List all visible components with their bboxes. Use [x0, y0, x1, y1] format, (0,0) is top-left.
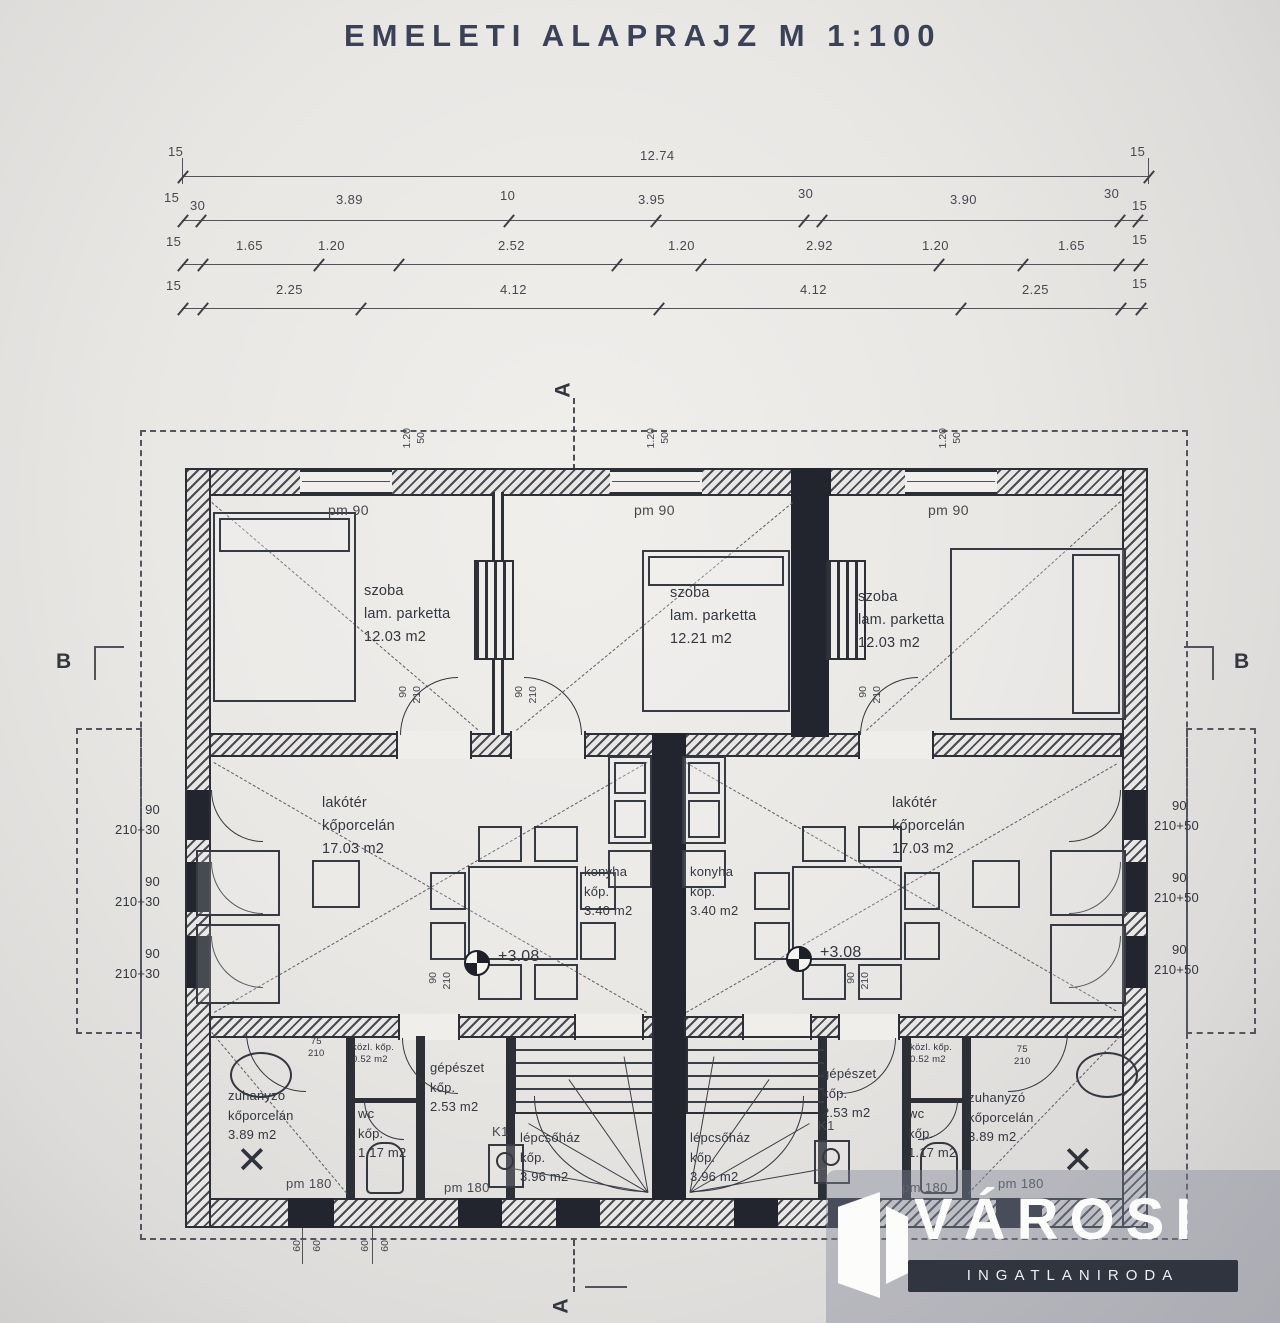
dim-tick [1135, 302, 1147, 316]
dim-tick [933, 258, 945, 272]
watermark-brand: VÁROSI [914, 1186, 1202, 1253]
sofa [196, 924, 280, 1004]
window-right-2 [1124, 862, 1146, 912]
dim-tick [313, 258, 325, 272]
window-right-3 [1124, 936, 1146, 988]
door-size-tag: 90 [398, 686, 409, 698]
dim-label: 15 [168, 144, 183, 159]
chair [754, 922, 790, 960]
window-top-right [905, 470, 997, 494]
dim-label: 3.90 [950, 192, 977, 207]
party-wall-upper [791, 492, 829, 737]
dim-tick [195, 214, 207, 228]
door-opening [838, 1014, 900, 1040]
dim-tick [177, 258, 189, 272]
dim-label: 2.25 [1022, 282, 1049, 297]
window-size-tag: 50 [660, 432, 671, 444]
room-label-bedroom-left: szobalam. parketta12.03 m2 [364, 580, 450, 650]
dim-label: 1.65 [236, 238, 263, 253]
dim-label: 30 [1104, 186, 1119, 201]
dim-guide [372, 1228, 373, 1264]
room-label-kitchen-right: konyhakőp.3.40 m2 [690, 862, 738, 921]
door-size-tag: 75210 [1014, 1044, 1030, 1069]
dim-label: 1.65 [1058, 238, 1085, 253]
watermark-tagline: INGATLANIRODA [908, 1260, 1238, 1292]
dim-tick [955, 302, 967, 316]
dim-tag: 60 [360, 1240, 371, 1252]
dim-tick [1113, 258, 1125, 272]
window-tag-right-1: 90210+50 [1154, 796, 1218, 835]
room-label-wc-right: wckőp.1.17 m2 [908, 1104, 956, 1163]
dim-label: 2.25 [276, 282, 303, 297]
party-wall [652, 733, 686, 1200]
dim-label: 3.95 [638, 192, 665, 207]
window-tag-left-1: 90210+30 [96, 800, 160, 839]
door-pm180 [458, 1198, 502, 1228]
level-value: +3.08 [820, 940, 861, 966]
window-line [612, 481, 700, 482]
door-size-tag: 210 [860, 972, 871, 990]
window-tag-left-3: 90210+30 [96, 944, 160, 983]
room-label-shower-left: zuhanyzókőporcelán3.89 m2 [228, 1086, 294, 1145]
door-pm180 [288, 1198, 334, 1228]
window-line [907, 481, 995, 482]
watermark-logo-icon [886, 1206, 908, 1284]
dim-tick [177, 302, 189, 316]
window-size-tag: 1.20 [402, 428, 413, 448]
room-label-bedroom-center: szobalam. parketta12.21 m2 [670, 582, 756, 652]
window-left-1 [187, 790, 209, 840]
parapet-tag: pm 90 [928, 502, 969, 518]
dim-label: 1.20 [922, 238, 949, 253]
dim-tick [611, 258, 623, 272]
dim-label: 10 [500, 188, 515, 203]
section-bracket [1184, 646, 1212, 648]
chair [580, 922, 616, 960]
sofa [196, 850, 280, 916]
window-size-tag: 50 [416, 432, 427, 444]
dim-tick [177, 214, 189, 228]
dim-guide [302, 1228, 303, 1264]
chair [534, 826, 578, 862]
room-label-shower-right: zuhanyzókőporcelán3.89 m2 [968, 1088, 1034, 1147]
chair [430, 922, 466, 960]
window-bottom [734, 1198, 778, 1228]
dim-label: 15 [1132, 232, 1147, 247]
dim-tick [355, 302, 367, 316]
section-bracket [1212, 646, 1214, 680]
shower-drain-icon: ✕ [236, 1142, 268, 1180]
level-marker-icon [464, 950, 490, 976]
level-marker-icon [786, 946, 812, 972]
section-marker-b-right: B [1234, 650, 1249, 674]
side-table [312, 860, 360, 908]
chair [534, 964, 578, 1000]
room-label-hall-right: közl. kőp.0.52 m2 [910, 1042, 952, 1067]
door-size-tag: 90 [514, 686, 525, 698]
door-size-tag: 90 [846, 972, 857, 984]
dim-label: 1.20 [668, 238, 695, 253]
parapet-tag: pm 90 [634, 502, 675, 518]
dim-line [182, 264, 1148, 265]
door-size-tag: 210 [872, 686, 883, 704]
window-size-tag: 1.20 [938, 428, 949, 448]
dim-label: 3.89 [336, 192, 363, 207]
dim-tick [1132, 214, 1144, 228]
window-bottom [556, 1198, 600, 1228]
dim-guide [1148, 158, 1149, 184]
section-line-a-bottom [573, 1240, 575, 1292]
door-size-tag: 210 [442, 972, 453, 990]
level-value: +3.08 [498, 944, 539, 970]
side-table [972, 860, 1020, 908]
dim-tick [503, 214, 515, 228]
sofa [1050, 850, 1126, 916]
wardrobe [474, 560, 514, 660]
section-marker-a-top: A [552, 382, 576, 397]
section-marker-a-bottom: A [550, 1298, 574, 1313]
dim-tick [177, 170, 189, 184]
window-tag-right-2: 90210+50 [1154, 868, 1218, 907]
boiler-dial [822, 1148, 840, 1166]
boiler-tag: K1 [818, 1118, 835, 1133]
section-marker-b-left: B [56, 650, 71, 674]
dim-label: 15 [1132, 198, 1147, 213]
door-size-tag: 210 [528, 686, 539, 704]
room-label-stair-left: lépcsőházkőp.3.96 m2 [520, 1128, 580, 1187]
window-top-left [300, 470, 392, 494]
dim-line [182, 220, 1148, 221]
chair [904, 922, 940, 960]
dim-tick [1133, 258, 1145, 272]
kitchen-sink [688, 762, 720, 794]
watermark-tagline-bar: INGATLANIRODA [908, 1260, 1238, 1292]
dim-tick [1017, 258, 1029, 272]
door-size-tag: 75210 [308, 1036, 324, 1061]
section-bracket [94, 646, 96, 680]
dim-line [182, 308, 1148, 309]
dim-label: 30 [190, 198, 205, 213]
watermark-logo-icon [838, 1192, 880, 1298]
window-tag-left-2: 90210+30 [96, 872, 160, 911]
dim-label: 2.52 [498, 238, 525, 253]
parapet-tag: pm 180 [286, 1176, 332, 1191]
drawing-title: EMELETI ALAPRAJZ M 1:100 [344, 18, 941, 54]
dim-label: 15 [164, 190, 179, 205]
kitchen-sink [614, 762, 646, 794]
wall-left [185, 468, 211, 1228]
dim-label: 15 [1132, 276, 1147, 291]
dim-tick [798, 214, 810, 228]
sofa [1050, 924, 1126, 1004]
chair [478, 826, 522, 862]
dim-tick [650, 214, 662, 228]
chair [904, 872, 940, 910]
dim-label: 30 [798, 186, 813, 201]
room-label-kitchen-left: konyhakőp.3.40 m2 [584, 862, 632, 921]
dim-label: 2.92 [806, 238, 833, 253]
parapet-tag: pm 90 [328, 502, 369, 518]
door-size-tag: 210 [412, 686, 423, 704]
door-size-tag: 90 [858, 686, 869, 698]
room-label-bedroom-right: szobalam. parketta12.03 m2 [858, 586, 944, 656]
kitchen-hob [614, 800, 646, 838]
window-size-tag: 50 [952, 432, 963, 444]
chair [754, 872, 790, 910]
dim-tick [1114, 214, 1126, 228]
dim-label: 1.20 [318, 238, 345, 253]
dim-tick [393, 258, 405, 272]
dim-label: 4.12 [800, 282, 827, 297]
door-opening [510, 731, 586, 759]
kitchen-hob [688, 800, 720, 838]
dim-label: 15 [166, 278, 181, 293]
dim-tick [1115, 302, 1127, 316]
room-label-mech-left: gépészetkőp.2.53 m2 [430, 1058, 484, 1117]
window-line [302, 481, 390, 482]
bed-pillow [1072, 554, 1120, 714]
chair [430, 872, 466, 910]
room-label-hall-left: közl. kőp.0.52 m2 [352, 1042, 394, 1067]
dim-tick [816, 214, 828, 228]
room-label-living-left: lakótérkőporcelán17.03 m2 [322, 792, 395, 862]
dim-line [182, 176, 1148, 177]
bed-pillow [219, 518, 350, 552]
dim-tick [1143, 170, 1155, 184]
room-label-stair-right: lépcsőházkőp.3.96 m2 [690, 1128, 750, 1187]
door-opening [398, 1014, 460, 1040]
window-size-tag: 1.20 [646, 428, 657, 448]
room-label-living-right: lakótérkőporcelán17.03 m2 [892, 792, 965, 862]
washbasin [1076, 1052, 1138, 1098]
room-label-wc-left: wckőp.1.17 m2 [358, 1104, 406, 1163]
door-opening [396, 731, 472, 759]
dim-guide [182, 158, 183, 184]
dim-tag: 60 [380, 1240, 391, 1252]
dim-tag: 60 [312, 1240, 323, 1252]
dim-tick [695, 258, 707, 272]
room-label-mech-right: gépészetkőp.2.53 m2 [822, 1064, 876, 1123]
dim-label: 12.74 [640, 148, 675, 163]
chair [802, 826, 846, 862]
dim-label: 4.12 [500, 282, 527, 297]
chair [802, 964, 846, 1000]
section-elbow [585, 1286, 627, 1288]
section-bracket [94, 646, 124, 648]
door-opening [858, 731, 934, 759]
section-line-a-top [573, 398, 575, 470]
window-top-center [610, 470, 702, 494]
boiler-dial [496, 1152, 514, 1170]
dim-label: 15 [166, 234, 181, 249]
dim-tick [653, 302, 665, 316]
dim-tick [197, 258, 209, 272]
window-tag-right-3: 90210+50 [1154, 940, 1218, 979]
dim-label: 15 [1130, 144, 1145, 159]
dim-tick [197, 302, 209, 316]
door-size-tag: 90 [428, 972, 439, 984]
window-right-1 [1124, 790, 1146, 840]
boiler-tag: K1 [492, 1124, 509, 1139]
parapet-tag: pm 180 [444, 1180, 490, 1195]
